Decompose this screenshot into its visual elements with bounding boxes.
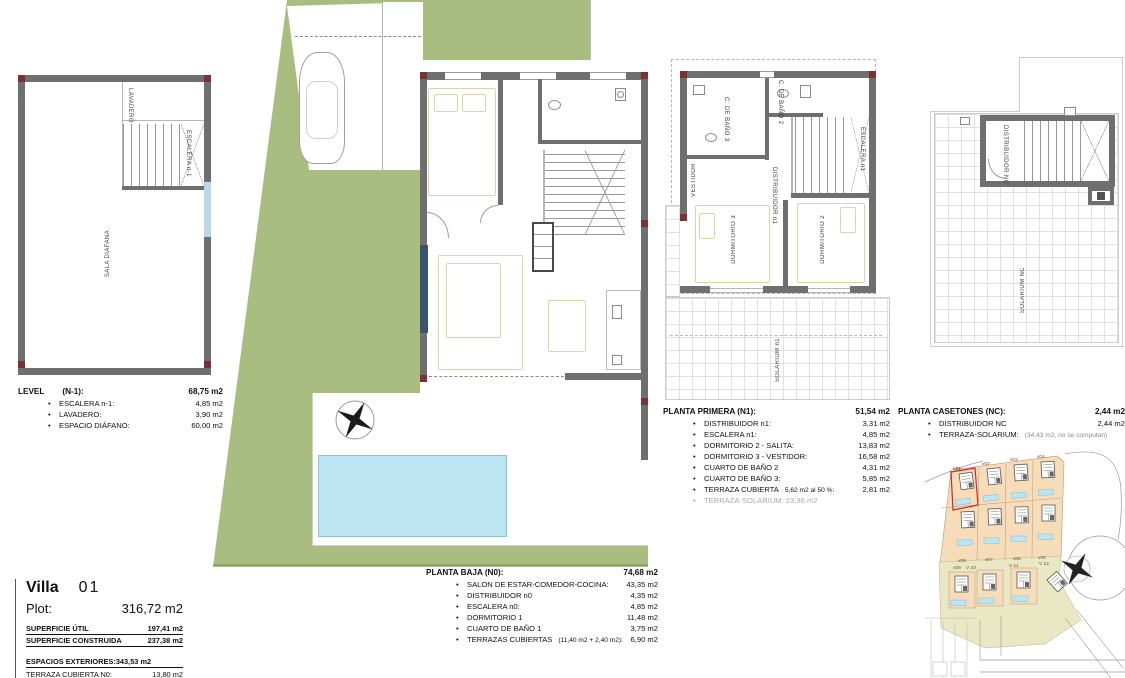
neighbour-building [933, 662, 947, 676]
row-value: 6,90 m2 [631, 634, 658, 645]
window-gap [590, 72, 626, 80]
sofa-cushion [446, 263, 501, 338]
wall [538, 79, 542, 144]
dining-table-icon [548, 300, 586, 352]
villa-pool [957, 539, 972, 545]
row-label: CUARTO DE BAÑO 1 [467, 623, 541, 634]
bullet: • [456, 634, 467, 645]
row-label: SUPERFICIE CONSTRUIDA [26, 636, 122, 645]
table-total: 74,68 m2 [623, 567, 658, 579]
wall [791, 117, 793, 195]
row-note: (34,43 m2, no se computan) [1025, 431, 1107, 441]
window-marker [204, 182, 211, 237]
villa-pool [1011, 536, 1026, 542]
bullet: • [48, 398, 59, 409]
table-title: PLANTA PRIMERA (N1): [663, 406, 756, 418]
exteriors-rows: TERRAZA CUBIERTA N0: 13,80 m2 TERRAZA CU… [26, 668, 183, 678]
row-note: (11,40 m2 + 2,40 m2): [558, 636, 623, 646]
bullet: • [928, 418, 939, 429]
villa-building [987, 468, 1002, 485]
table-row: • DISTRIBUIDOR n1: 3,31 m2 [663, 418, 890, 429]
corner-mark [641, 72, 648, 79]
row-value: 2,44 m2 [1098, 418, 1125, 429]
row-label: CUARTO DE BAÑO 3: [704, 473, 781, 484]
villa-building [1015, 507, 1028, 523]
swimming-pool [318, 455, 507, 537]
chimney-box [1088, 187, 1114, 205]
bullet: • [456, 612, 467, 623]
chimney-core [1097, 192, 1105, 200]
kitchen-sink-icon [612, 355, 622, 365]
bullet: • [693, 440, 704, 451]
table-header: PLANTA PRIMERA (N1): 51,54 m2 [663, 406, 890, 418]
bullet: • [693, 473, 704, 484]
row-value: 13,83 m2 [858, 440, 890, 451]
window-marker [710, 288, 763, 289]
row-value: 3,90 m2 [196, 409, 223, 420]
stairs [1024, 121, 1081, 181]
row-value: 237,38 m2 [148, 636, 183, 645]
pillow-icon [434, 94, 458, 112]
plot-line: Plot: 316,72 m2 [26, 601, 183, 616]
setback-line [295, 36, 421, 37]
row-label: ESCALERA n0: [467, 601, 520, 612]
plot-boundary [213, 564, 648, 566]
row-value: 13,80 m2 [152, 670, 183, 678]
villa-building [955, 576, 968, 592]
villa-pool [951, 600, 966, 606]
stairs [795, 117, 851, 193]
plot-label: Plot: [26, 601, 52, 616]
window-dark [420, 245, 428, 333]
area-table-level-n1: LEVEL (N-1): 68,75 m2 • ESCALERA n-1: 4,… [18, 386, 223, 431]
row-label: ESCALERA n1: [704, 429, 757, 440]
rooflight-icon [960, 117, 970, 125]
corner-mark [18, 361, 25, 368]
summary-row: SUPERFICIE CONSTRUIDA 237,38 m2 [26, 635, 183, 647]
wall [565, 373, 648, 380]
table-row: • CUARTO DE BAÑO 3: 5,85 m2 [663, 473, 890, 484]
row-label: DORMITORIO 2 - SALITA: [704, 440, 794, 451]
villa-label: v08 [958, 558, 966, 564]
villa-label: V 10 [966, 565, 976, 571]
plot-value: 316,72 m2 [122, 601, 183, 616]
window-marker [710, 292, 763, 293]
bullet: • [48, 409, 59, 420]
wall [869, 71, 876, 293]
rooflight-icon [1064, 107, 1076, 116]
villa-label: v07 [985, 557, 993, 563]
exteriors-block: ESPACIOS EXTERIORES: 343,53 m2 TERRAZA C… [26, 656, 183, 678]
row-value: 4,85 m2 [863, 429, 890, 440]
table-title: PLANTA CASETONES (NC): [898, 406, 1006, 418]
kitchen-island [532, 222, 554, 272]
table-row: • DORMITORIO 2 - SALITA: 13,83 m2 [663, 440, 890, 451]
row-label: DORMITORIO 1 [467, 612, 523, 623]
compass-rose-icon [333, 398, 377, 442]
entry-door-arc [427, 212, 449, 238]
corner-mark [420, 375, 427, 382]
terrace-tiles [665, 205, 680, 297]
table-title: PLANTA BAJA (N0): [426, 567, 503, 579]
row-label: DORMITORIO 3 - VESTIDOR: [704, 451, 807, 462]
villa-pool [979, 598, 994, 604]
room-label-vestidor: VESTIDOR [691, 163, 697, 197]
row-label: TERRAZA-SOLARIUM: [939, 429, 1019, 440]
window-marker [808, 288, 850, 289]
plot-site-area [213, 0, 648, 567]
row-label: ESPACIOS EXTERIORES: [26, 657, 116, 666]
corner-mark [869, 71, 876, 78]
stair-landing [585, 150, 625, 235]
road-line [980, 660, 1125, 672]
corner-mark [641, 398, 648, 405]
row-label: LAVADERO: [59, 409, 101, 420]
villa-label: V 12 [1039, 561, 1049, 567]
wall [687, 155, 769, 159]
villa-label: v04 [1037, 454, 1045, 460]
room-label-sala-diafana: SALA DIÁFANA [105, 230, 111, 277]
bullet: • [693, 429, 704, 440]
wall [641, 405, 648, 460]
bullet: • [693, 484, 704, 495]
toilet-icon [548, 100, 561, 110]
exteriors-header: ESPACIOS EXTERIORES: 343,53 m2 [26, 656, 183, 668]
room-label-solarium-nc: SOLARIUM NC [1020, 267, 1026, 313]
neighbour-building [951, 662, 965, 676]
title-block: Villa 01 Plot: 316,72 m2 SUPERFICIE ÚTIL… [15, 579, 183, 678]
row-value: 16,58 m2 [858, 451, 890, 462]
villa-building [988, 509, 1002, 525]
row-value: 3,75 m2 [631, 623, 658, 634]
room-label-solarium-n1: SOLARIUM n1 [775, 338, 781, 382]
wall [498, 79, 503, 205]
table-row: • DISTRIBUIDOR NC 2,44 m2 [898, 418, 1125, 429]
row-label: ESPACIO DIÁFANO: [59, 420, 130, 431]
site-key-plan: v01 v02 v03 v04 v08 v07 v06 v05 v09 V 10… [925, 448, 1125, 678]
table-row: • SALON DE ESTAR-COMEDOR-COCINA: 43,35 m… [426, 579, 658, 590]
corner-mark [680, 214, 687, 221]
row-label: TERRAZA CUBIERTA [704, 484, 779, 495]
villa-label: v03 [1010, 457, 1018, 463]
villa-label: V 11 [1009, 563, 1019, 569]
table-row: • DORMITORIO 3 - VESTIDOR: 16,58 m2 [663, 451, 890, 462]
surface-summary: SUPERFICIE ÚTIL 197,41 m2 SUPERFICIE CON… [26, 623, 183, 647]
bullet: • [456, 601, 467, 612]
pillow-icon [840, 207, 856, 233]
villa-number: 01 [79, 579, 101, 597]
table-row: • LAVADERO: 3,90 m2 [18, 409, 223, 420]
villa-label: v02 [982, 461, 990, 467]
row-label: DISTRIBUIDOR n0 [467, 590, 532, 601]
door-arc [480, 205, 498, 223]
table-row: • TERRAZA-SOLARIUM: 23,36 m2 [663, 495, 890, 506]
wall [122, 186, 204, 190]
villa-building [1041, 461, 1055, 478]
table-row: • DORMITORIO 1 11,48 m2 [426, 612, 658, 623]
row-value: 343,53 m2 [116, 657, 151, 666]
corner-mark [204, 361, 211, 368]
table-total: 51,54 m2 [855, 406, 890, 418]
row-label: SALON DE ESTAR-COMEDOR-COCINA: [467, 579, 609, 590]
summary-row: SUPERFICIE ÚTIL 197,41 m2 [26, 623, 183, 635]
wall [791, 193, 869, 198]
bullet: • [928, 429, 939, 440]
window-marker [808, 292, 850, 293]
roof-overhang [670, 335, 882, 336]
villa-building [1014, 464, 1028, 481]
wall [538, 140, 641, 144]
row-label: SUPERFICIE ÚTIL [26, 624, 89, 633]
roof-casetones-plan: DISTRIBUIDOR NC SOLARIUM NC [928, 55, 1125, 355]
fridge-icon [612, 305, 622, 319]
bullet: • [693, 495, 704, 506]
ground-floor-plan [420, 60, 648, 405]
row-value: 11,48 m2 [627, 612, 658, 623]
room-label-lavadero: LAVADERO [127, 88, 133, 123]
row-value: 4,85 m2 [196, 398, 223, 409]
corner-mark [420, 72, 427, 79]
villa-label: v01 [953, 466, 961, 472]
pillow-icon [462, 94, 486, 112]
pool-terrace [312, 393, 648, 546]
wall [763, 286, 808, 293]
table-row: • ESCALERA n0: 4,85 m2 [426, 601, 658, 612]
table-row: • ESCALERA n-1: 4,85 m2 [18, 398, 223, 409]
bullet: • [456, 623, 467, 634]
area-table-planta-casetones: PLANTA CASETONES (NC): 2,44 m2 • DISTRIB… [898, 406, 1125, 440]
row-label: DISTRIBUIDOR n1: [704, 418, 771, 429]
table-code: (N-1): [62, 386, 83, 398]
exterior-row: TERRAZA CUBIERTA N0: 13,80 m2 [26, 668, 183, 678]
sliding-door [424, 376, 564, 377]
table-row: • ESCALERA n1: 4,85 m2 [663, 429, 890, 440]
bullet: • [693, 451, 704, 462]
table-items: • ESCALERA n-1: 4,85 m2 • LAVADERO: 3,90… [18, 398, 223, 431]
stair-enclosure: DISTRIBUIDOR NC [980, 115, 1115, 187]
wall [783, 200, 788, 290]
row-label: ESCALERA n-1: [59, 398, 114, 409]
window-gap [445, 72, 481, 80]
villa-building [959, 472, 974, 490]
toilet-icon [705, 133, 717, 142]
corner-mark [641, 220, 648, 227]
table-items: • DISTRIBUIDOR NC 2,44 m2 • TERRAZA-SOLA… [898, 418, 1125, 441]
room-label-dormitorio3: DORMITORIO 3 [731, 215, 737, 264]
pillow-icon [699, 213, 715, 239]
villa-label: v05 [1038, 555, 1046, 561]
villa-pool [1011, 492, 1026, 499]
table-row: • TERRAZA-SOLARIUM: (34,43 m2, no se com… [898, 429, 1125, 441]
villa-building [1042, 505, 1055, 521]
villa-label: Villa [26, 579, 59, 597]
toilet-icon [800, 85, 811, 98]
table-header: PLANTA CASETONES (NC): 2,44 m2 [898, 406, 1125, 418]
first-floor-plan: VESTIDOR C. DE BAÑO 3 C. DE BAÑO 2 DISTR… [665, 55, 890, 400]
parking-path [383, 2, 423, 170]
wall [765, 78, 769, 160]
table-row: • TERRAZA CUBIERTA 5,62 m2 al 50 %: 2,81… [663, 484, 890, 496]
car-roof [306, 81, 338, 139]
roof-notch [930, 57, 1020, 112]
row-label: TERRAZA-SOLARIUM: 23,36 m2 [704, 495, 818, 506]
room-label-distribuidor-n1: DISTRIBUIDOR n1 [771, 167, 777, 224]
table-header: LEVEL (N-1): 68,75 m2 [18, 386, 223, 398]
row-label: DISTRIBUIDOR NC [939, 418, 1007, 429]
table-row: • ESPACIO DIÁFANO: 60,00 m2 [18, 420, 223, 431]
row-value: 197,41 m2 [148, 624, 183, 633]
road-line [1065, 452, 1121, 540]
bullet: • [456, 579, 467, 590]
row-label: TERRAZAS CUBIERTAS [467, 634, 552, 645]
sink-icon [693, 85, 705, 95]
stairs [123, 124, 181, 186]
row-value: 2,81 m2 [863, 484, 890, 495]
table-row: • CUARTO DE BAÑO 1 3,75 m2 [426, 623, 658, 634]
area-table-planta-primera: PLANTA PRIMERA (N1): 51,54 m2 • DISTRIBU… [663, 406, 890, 506]
bullet: • [693, 462, 704, 473]
table-total: 68,75 m2 [188, 386, 223, 398]
row-value: 4,35 m2 [631, 590, 658, 601]
row-value: 4,85 m2 [631, 601, 658, 612]
villa-pool [1038, 489, 1053, 495]
table-row: • TERRAZAS CUBIERTAS (11,40 m2 + 2,40 m2… [426, 634, 658, 646]
corner-mark [204, 75, 211, 82]
villa-pool [1013, 596, 1028, 602]
plan-sheet: LAVADERO ESCALERA n-1 SALA DIÁFANA LEVEL… [0, 0, 1125, 678]
area-table-planta-baja: PLANTA BAJA (N0): 74,68 m2 • SALON DE ES… [426, 567, 658, 645]
corner-mark [680, 71, 687, 78]
table-items: • SALON DE ESTAR-COMEDOR-COCINA: 43,35 m… [426, 579, 658, 646]
room-label-bano3: C. DE BAÑO 3 [723, 97, 729, 141]
stair-landing [1081, 121, 1109, 181]
villa-pool [984, 538, 999, 544]
row-value: 60,00 m2 [191, 420, 223, 431]
door-arc [988, 159, 1006, 179]
row-value: 3,31 m2 [863, 418, 890, 429]
bullet: • [456, 590, 467, 601]
table-total: 2,44 m2 [1095, 406, 1125, 418]
car-icon [299, 52, 345, 164]
basement-floor-plan: LAVADERO ESCALERA n-1 SALA DIÁFANA [18, 75, 211, 375]
villa-label: v09 [953, 565, 961, 571]
wall [680, 286, 710, 293]
wall [420, 72, 427, 382]
row-value: 5,85 m2 [863, 473, 890, 484]
wall [680, 71, 876, 78]
villa-pool [1038, 534, 1053, 540]
bullet: • [48, 420, 59, 431]
wall [850, 286, 876, 293]
table-title: LEVEL [18, 386, 44, 398]
room-label-escalera-n1: ESCALERA n1 [859, 127, 865, 171]
row-label: CUARTO DE BAÑO 2 [704, 462, 778, 473]
table-row: • DISTRIBUIDOR n0 4,35 m2 [426, 590, 658, 601]
villa-label: v06 [1013, 556, 1021, 562]
row-label: TERRAZA CUBIERTA N0: [26, 670, 112, 678]
wall [641, 72, 648, 405]
row-value: 43,35 m2 [626, 579, 658, 590]
room-label-bano2: C. DE BAÑO 2 [777, 80, 783, 124]
table-header: PLANTA BAJA (N0): 74,68 m2 [426, 567, 658, 579]
wall [122, 120, 204, 121]
wall [680, 71, 687, 221]
villa-building [983, 574, 996, 590]
bullet: • [693, 418, 704, 429]
villa-building [961, 511, 975, 528]
row-value: 4,31 m2 [863, 462, 890, 473]
table-row: • CUARTO DE BAÑO 2 4,31 m2 [663, 462, 890, 473]
corner-mark [18, 75, 25, 82]
window-gap [760, 71, 774, 78]
row-note: 5,62 m2 al 50 %: [785, 486, 834, 496]
villa-building [1017, 572, 1030, 588]
villa-title: Villa 01 [26, 579, 183, 597]
room-label-dormitorio2: DORMITORIO 2 [820, 215, 826, 264]
sink-bowl-icon [617, 91, 624, 98]
table-items: • DISTRIBUIDOR n1: 3,31 m2 • ESCALERA n1… [663, 418, 890, 507]
room-label-escalera-n-1: ESCALERA n-1 [185, 130, 191, 177]
